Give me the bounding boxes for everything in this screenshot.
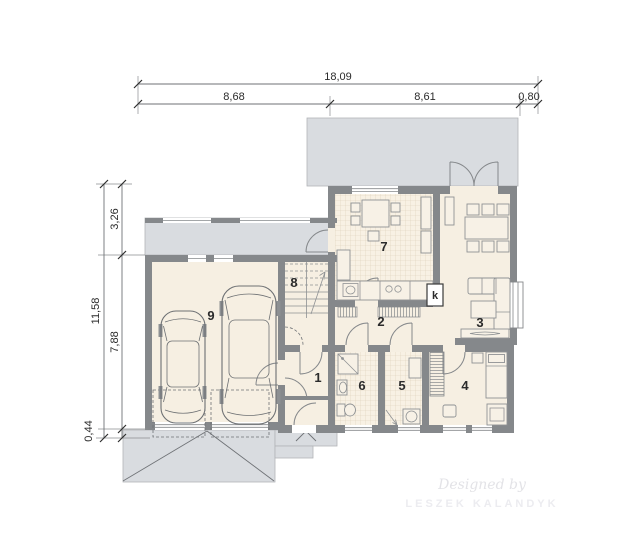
- dining-chair: [467, 204, 479, 215]
- kitchen-chair: [351, 203, 360, 212]
- radiator: [338, 307, 357, 317]
- kitchen-chair: [391, 203, 400, 212]
- dining-chair: [482, 241, 494, 252]
- toilet: [337, 404, 356, 416]
- kitchen-side-table: [368, 231, 379, 241]
- bed: [486, 352, 507, 398]
- stool: [443, 405, 456, 417]
- bathroom-window: [345, 425, 372, 433]
- floor-plan-page: 18,09 8,68 8,61 0,80 11,58 3,26 7,88 0,4…: [0, 0, 638, 556]
- living-south-wall: [455, 338, 517, 345]
- watermark: Designed by LESZEK KALANDYK: [402, 477, 562, 510]
- sideboard: [445, 197, 454, 225]
- wardrobe: [430, 352, 444, 396]
- dining-chair: [482, 204, 494, 215]
- garage-west-wall: [145, 255, 152, 430]
- room-label-garage: 9: [207, 308, 214, 323]
- fireplace-label: k: [432, 290, 439, 302]
- watermark-line1: Designed by: [402, 477, 562, 493]
- tall-cabinet: [421, 197, 431, 229]
- tv-stand: [461, 329, 509, 338]
- washbasin: [337, 380, 347, 395]
- dim-top-seg2: 8,61: [414, 91, 435, 103]
- fridge: [337, 250, 350, 280]
- watermark-line2: LESZEK KALANDYK: [402, 498, 562, 510]
- terrace-door-opening: [450, 186, 498, 194]
- room-label-staircase: 8: [290, 275, 297, 290]
- bedroom-door-opening: [443, 345, 465, 352]
- dim-top-seg1: 8,68: [223, 91, 244, 103]
- dim-top-seg3: 0,80: [518, 91, 539, 103]
- hall-north-wall: [335, 300, 433, 307]
- bath-door-opening: [345, 345, 368, 352]
- room-label-bathroom: 6: [358, 378, 365, 393]
- side-porch: [145, 218, 337, 255]
- garage-house-door-opening: [278, 360, 285, 385]
- entry-door-opening: [300, 345, 322, 352]
- dining-chair: [467, 241, 479, 252]
- floor-plan-drawing: 18,09 8,68 8,61 0,80 11,58 3,26 7,88 0,4…: [0, 0, 638, 556]
- bedroom-window-2: [472, 425, 492, 433]
- dining-chair: [497, 241, 509, 252]
- utility-door-opening: [390, 345, 412, 352]
- bedroom-window-1: [443, 425, 466, 433]
- room-label-utility: 5: [398, 378, 405, 393]
- kitchen-counter: [337, 281, 433, 300]
- entry-bath-wall: [328, 307, 335, 425]
- room-label-living-room: 3: [476, 315, 483, 330]
- entry-porch: [275, 430, 337, 458]
- utility-bedroom-wall: [422, 345, 429, 433]
- room-label-bedroom: 4: [461, 378, 469, 393]
- kitchen-east-wall: [433, 194, 440, 286]
- room-label-entry-hall: 1: [314, 370, 321, 385]
- terrace: [307, 118, 518, 186]
- dining-table: [465, 217, 508, 239]
- room-label-hallway: 2: [377, 314, 384, 329]
- dimension-left: 11,58 3,26 7,88 0,44: [83, 180, 150, 442]
- kitchen-chair: [351, 216, 360, 225]
- entrance-door-opening: [292, 425, 316, 433]
- bath-utility-wall: [378, 352, 385, 425]
- room-label-kitchen: 7: [380, 239, 387, 254]
- dining-chair: [497, 204, 509, 215]
- porch-door-opening: [328, 228, 335, 252]
- washing-machine: [403, 409, 420, 424]
- utility-window: [398, 425, 420, 433]
- shower: [338, 354, 358, 374]
- kitchen-door-opening: [355, 300, 378, 307]
- dim-left-total: 11,58: [90, 298, 102, 325]
- nightstand: [472, 353, 483, 363]
- house-west-wall: [278, 255, 285, 433]
- boiler: [409, 358, 421, 378]
- kitchen-window: [352, 186, 398, 194]
- garage-north-wall: [145, 255, 337, 262]
- dim-left-seg1: 3,26: [109, 208, 121, 229]
- dim-top-total: 18,09: [324, 71, 352, 83]
- dim-left-seg3: 0,44: [83, 420, 95, 441]
- bedroom-east-wall: [507, 345, 514, 433]
- dim-left-seg2: 7,88: [109, 331, 121, 352]
- dimension-top: 18,09 8,68 8,61 0,80: [134, 71, 542, 116]
- tall-cabinet: [421, 231, 431, 253]
- kitchen-chair: [391, 216, 400, 225]
- kitchen-table: [362, 200, 389, 227]
- dresser: [487, 404, 507, 425]
